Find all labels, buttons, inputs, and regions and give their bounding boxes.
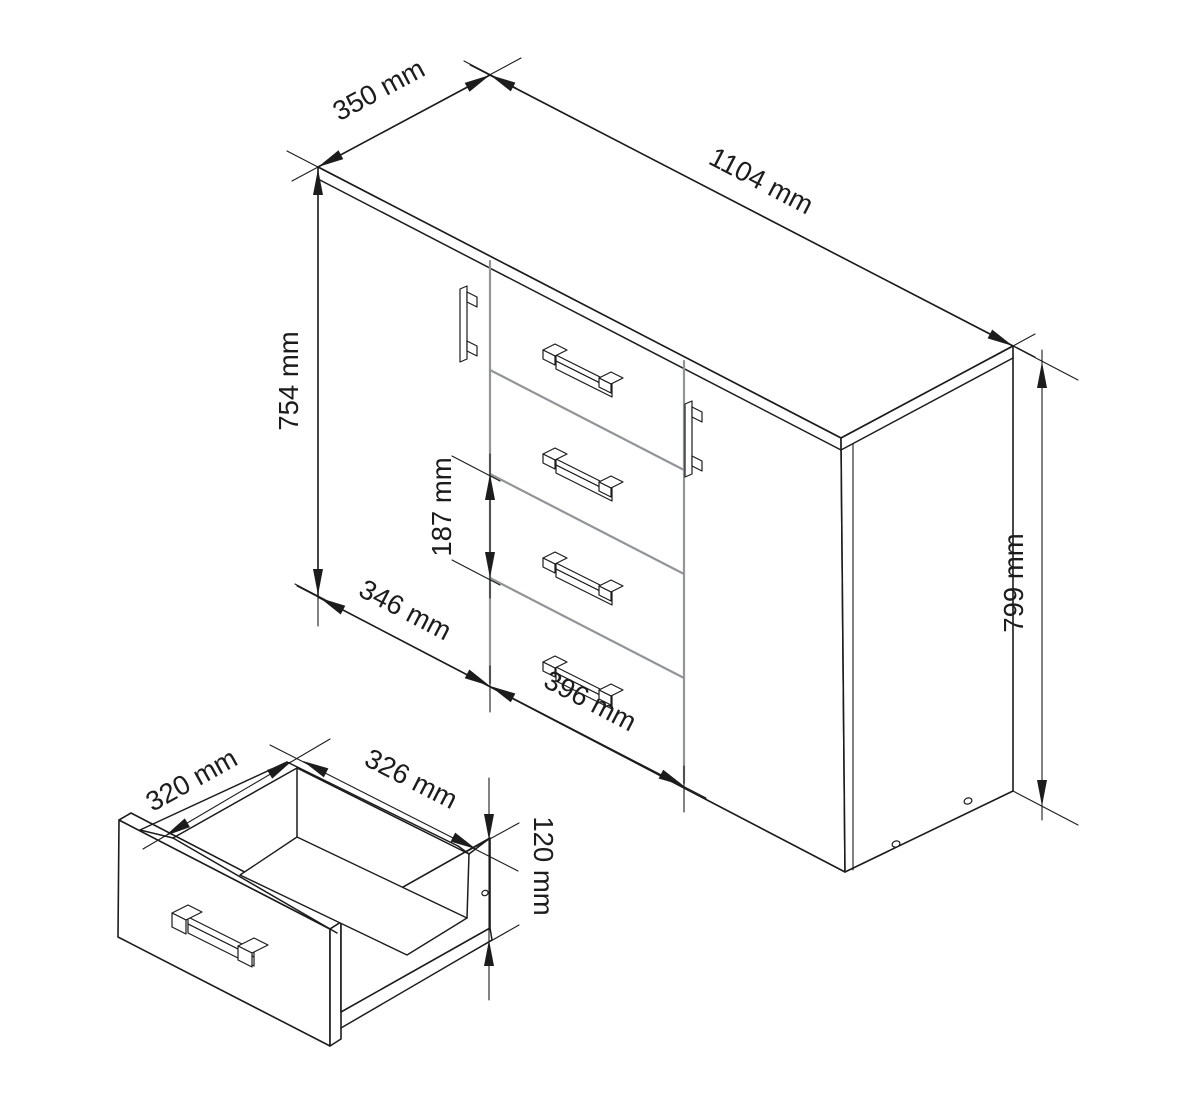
dim-arrow xyxy=(165,818,190,836)
dim-arrow xyxy=(1037,362,1047,388)
furniture-dimension-diagram: 350 mm 1104 mm 754 mm 187 mm 346 mm 396 xyxy=(0,0,1200,1108)
dim-label-door-height: 754 mm xyxy=(273,331,304,430)
dim-label-drawer-side-height: 120 mm xyxy=(528,816,559,915)
extension-line xyxy=(1013,346,1078,380)
extension-line xyxy=(466,823,519,852)
dim-label-cabinet-height: 799 mm xyxy=(998,533,1029,632)
drawer-front-panel-side xyxy=(330,922,341,1046)
dim-label-drawer-inner-width: 326 mm xyxy=(360,742,463,815)
drawer-rail-edge xyxy=(490,928,492,940)
cabinet-main-view xyxy=(318,75,1013,872)
dim-label-drawer-front-height: 187 mm xyxy=(426,457,457,556)
dim-arrow xyxy=(1037,780,1047,806)
cabinet-side-face xyxy=(841,346,1013,872)
dim-arrow xyxy=(303,761,328,777)
extension-line xyxy=(1013,791,1078,825)
technical-drawing-page: 350 mm 1104 mm 754 mm 187 mm 346 mm 396 xyxy=(0,0,1200,1108)
dim-arrow xyxy=(484,814,494,840)
dim-arrow xyxy=(267,761,292,779)
